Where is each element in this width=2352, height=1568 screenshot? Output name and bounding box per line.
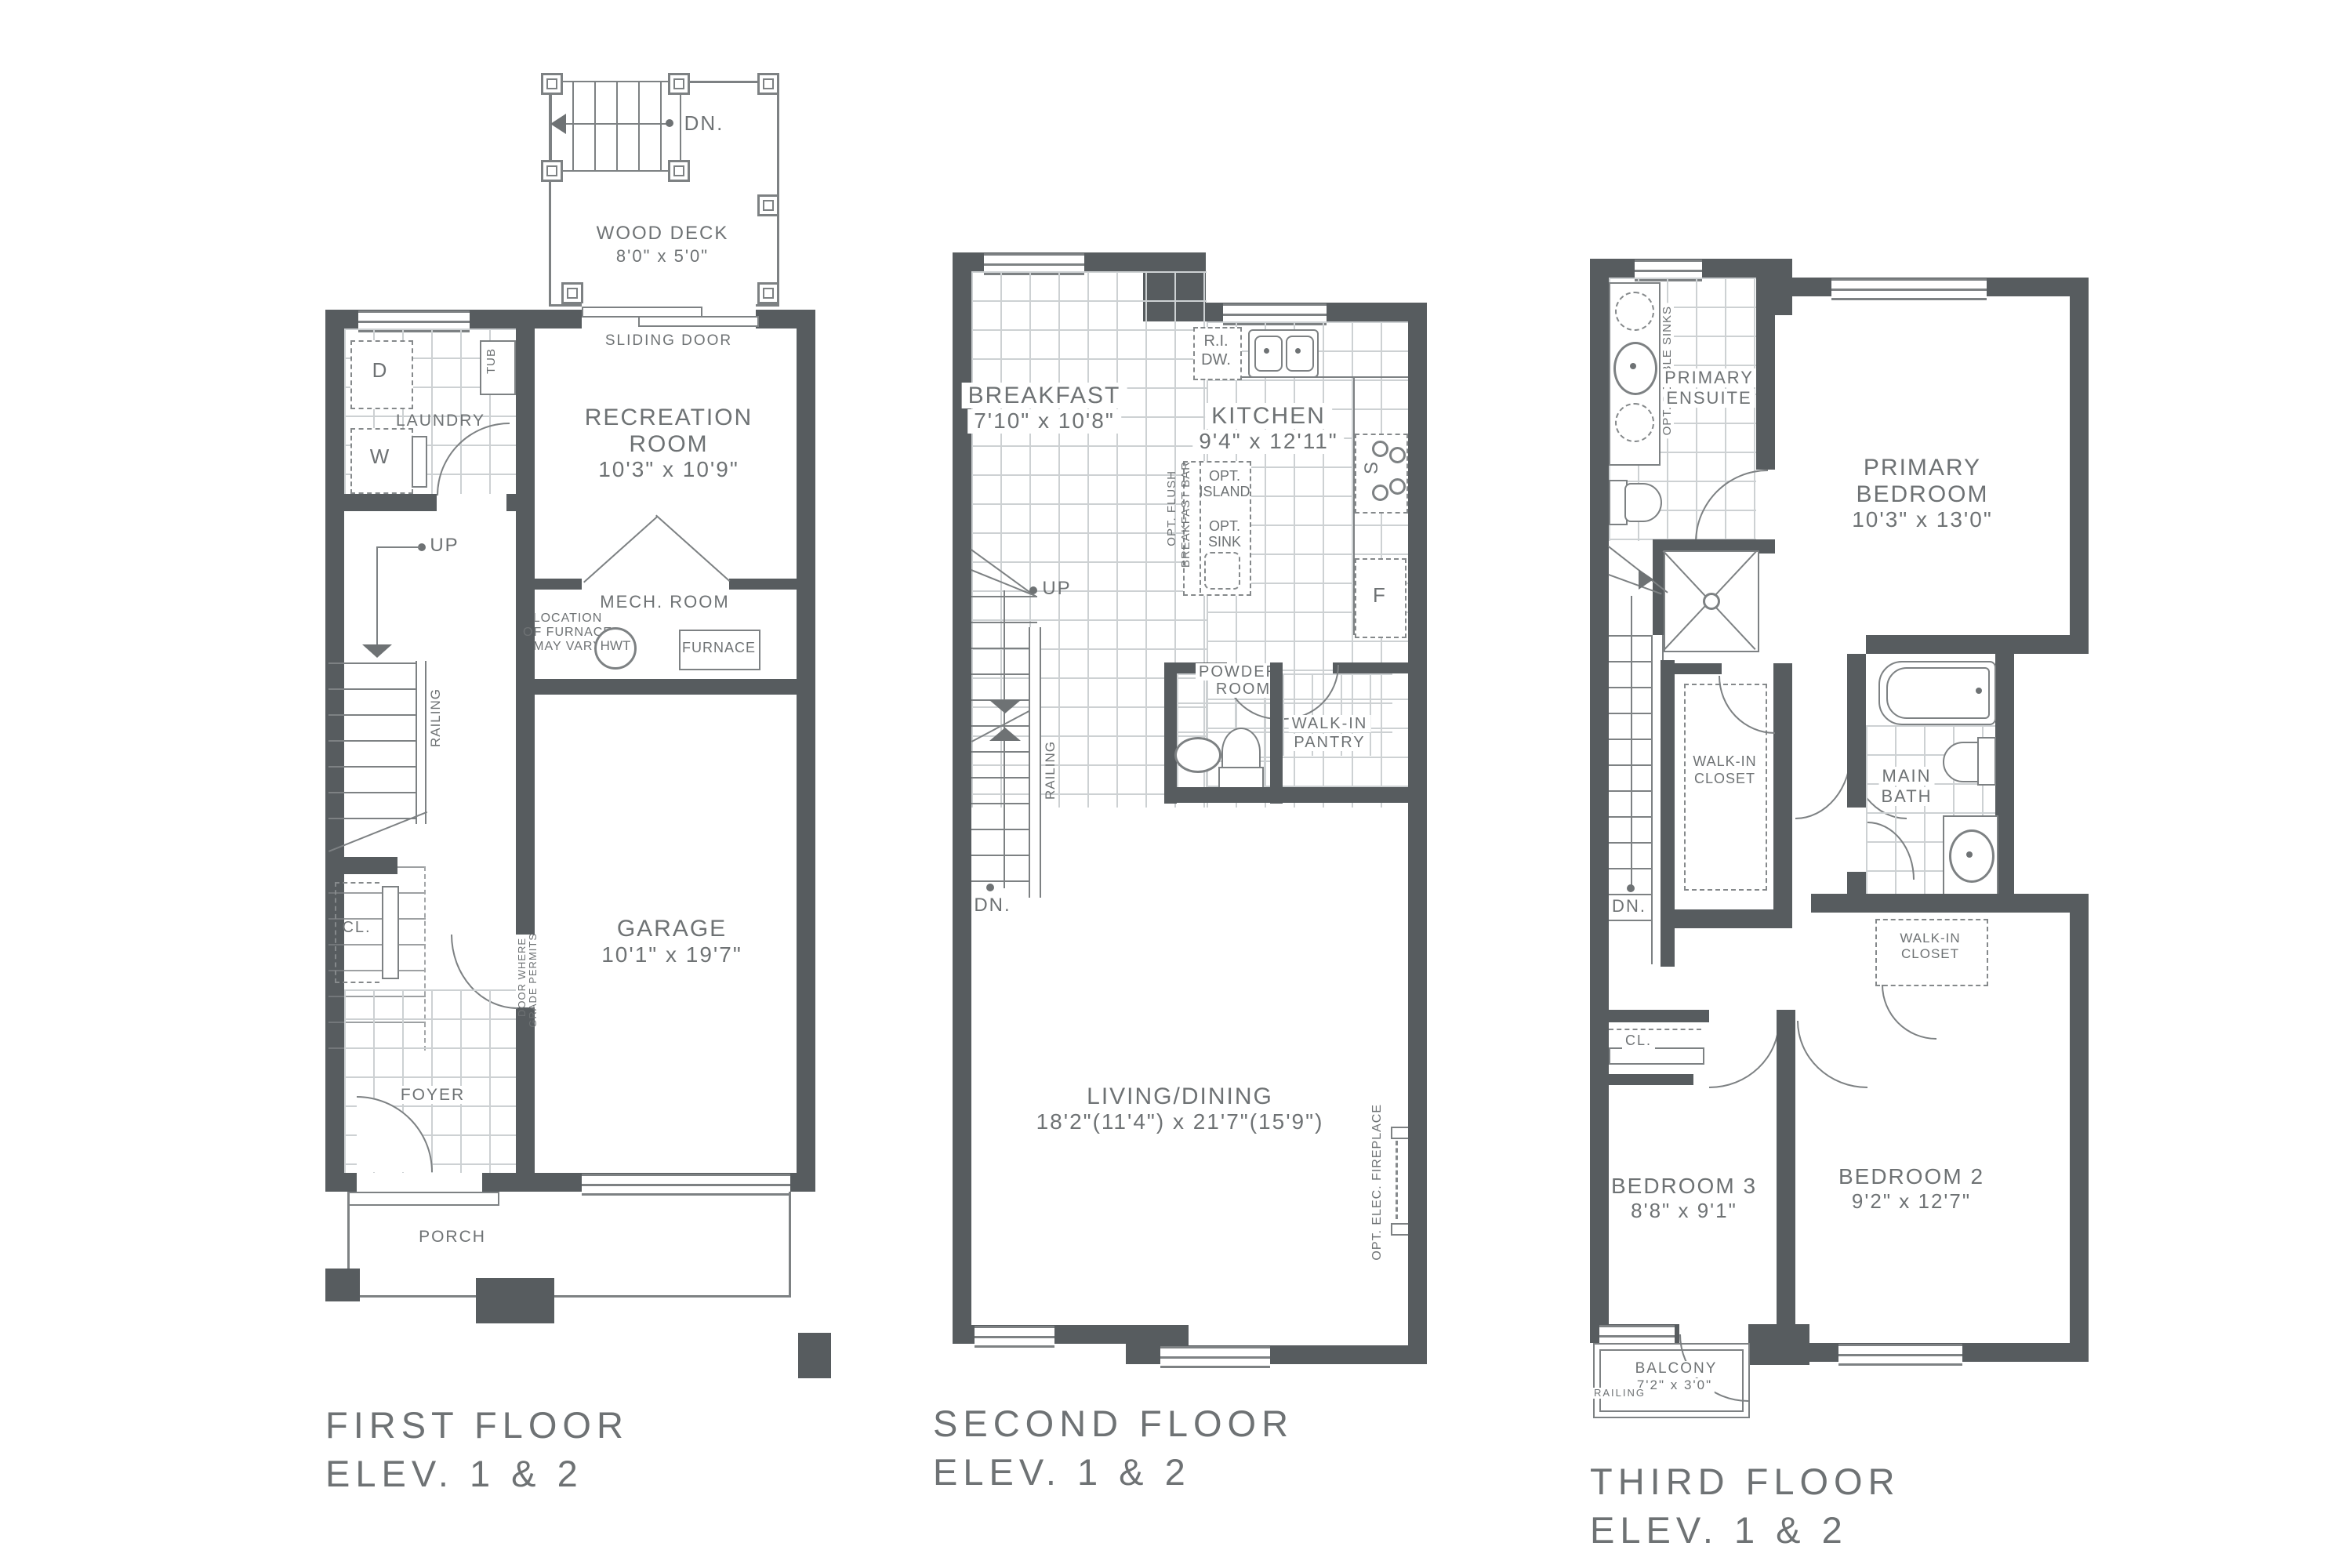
washer-door-panel — [412, 436, 427, 488]
washer-label: W — [370, 445, 391, 468]
bath-toilet-tank — [1977, 737, 1996, 786]
deck-post — [757, 282, 779, 304]
furnace-label: FURNACE — [682, 641, 756, 656]
main-bath-label-2: BATH — [1878, 787, 1935, 806]
bath-tub-inner — [1886, 667, 1990, 719]
deck-stair-arrow — [550, 114, 566, 134]
first-floor-elev: ELEV. 1 & 2 — [325, 1452, 583, 1495]
grade-door-label-2: GRADE PERMITS — [527, 933, 539, 1028]
mech-top-wall-right — [729, 579, 797, 590]
breakfast-bar-label-2: BREAKFAST BAR — [1179, 461, 1192, 568]
powder-label-2: ROOM — [1213, 681, 1274, 698]
breakfast-bar-label-1: OPT. FLUSH — [1165, 470, 1178, 546]
hwt-label: HWT — [601, 639, 631, 654]
furnace-note-1: LOCATION — [533, 612, 603, 626]
deck-dn-label: DN. — [684, 112, 724, 135]
cl-dash-line — [1609, 1029, 1701, 1030]
f2-up-dot — [1029, 586, 1037, 594]
f3-stair-center — [1631, 596, 1632, 887]
wic1-label-2: CLOSET — [1694, 771, 1755, 787]
foyer-label: FOYER — [396, 1086, 470, 1104]
shower-drain — [1703, 593, 1720, 610]
deck-stair-box — [549, 81, 681, 172]
deck-post — [541, 160, 563, 182]
porch-label: PORCH — [419, 1228, 486, 1246]
floorplan-canvas: DN. WOOD DECK 8'0" x 5'0" SLIDING DOOR D… — [0, 0, 2352, 1568]
f1-railing-label: RAILING — [428, 688, 444, 747]
deck-post — [757, 194, 779, 216]
opt-sink-label-1: OPT. — [1209, 519, 1240, 535]
primary-bedroom-label-1: PRIMARY — [1864, 455, 1981, 481]
kitchen-sink-basin-right — [1286, 336, 1314, 372]
bed2-window — [1838, 1344, 1962, 1366]
deck-dn-dot — [666, 119, 673, 127]
f3-right-wall-lower — [2070, 894, 2089, 1362]
porch-slab — [476, 1278, 554, 1323]
laundry-bottom-wall — [344, 494, 437, 511]
f1-stair-line-h — [376, 546, 420, 548]
pantry-label-1: WALK-IN — [1289, 715, 1371, 732]
wic1-top-wall — [1675, 663, 1722, 674]
wic2-door-arc — [1882, 985, 1936, 1040]
bath-sink-drain — [1966, 851, 1973, 858]
grade-door-label-1: DOOR WHERE — [516, 938, 528, 1017]
wic2-label-1: WALK-IN — [1900, 931, 1960, 946]
mech-door-leaf-left — [583, 516, 658, 583]
mech-door-leaf-right — [655, 515, 730, 582]
wic1-label-1: WALK-IN — [1693, 754, 1756, 770]
f1-right-marker — [798, 1333, 831, 1378]
f2-railing-label: RAILING — [1043, 741, 1058, 800]
living-dims: 18'2"(11'4") x 21'7"(15'9") — [1036, 1110, 1324, 1134]
deck-post — [668, 73, 690, 95]
ri-dw-label-1: R.I. — [1203, 332, 1228, 350]
breakfast-label: BREAKFAST — [962, 383, 1127, 408]
deck-post — [561, 282, 583, 304]
wic1-right-wall — [1773, 663, 1792, 922]
island-bar-divider — [1200, 461, 1201, 593]
burner — [1372, 485, 1388, 501]
second-floor-elev: ELEV. 1 & 2 — [933, 1450, 1191, 1494]
f2-stair-railing — [1029, 627, 1041, 898]
first-floor-title: FIRST FLOOR — [325, 1403, 629, 1446]
fridge-label: F — [1373, 584, 1387, 607]
f1-center-wall-lower — [516, 1007, 535, 1173]
rec-room-label-1: RECREATION — [585, 405, 753, 430]
powder-sink — [1174, 737, 1221, 773]
fireplace-dash — [1396, 1141, 1398, 1219]
f3-left-wall — [1590, 259, 1609, 1343]
hall-door-arc-left — [1795, 751, 1852, 819]
f3-dn-label: DN. — [1612, 897, 1646, 916]
bedroom2-dims: 9'2" x 12'7" — [1852, 1190, 1971, 1213]
f2-up-label: UP — [1042, 579, 1071, 599]
fireplace-label: OPT. ELEC. FIREPLACE — [1370, 1104, 1385, 1261]
ensuite-label-1: PRIMARY — [1661, 368, 1757, 387]
ensuite-sink-drain — [1630, 363, 1636, 369]
laundry-bottom-wall-stub — [506, 494, 516, 511]
tub-drain — [1976, 688, 1982, 694]
f1-closet-door — [382, 886, 399, 979]
f3-dn-dot — [1627, 884, 1635, 892]
burner — [1372, 441, 1388, 457]
ri-dw-label-2: DW. — [1201, 351, 1231, 368]
opt-island-label-1: OPT. — [1209, 469, 1240, 485]
opt-sink-circle-1 — [1615, 292, 1654, 331]
main-bath-label-1: MAIN — [1879, 767, 1935, 786]
deck-stair-arrow-line — [554, 123, 670, 125]
f1-closet-top-wall — [328, 857, 397, 874]
cl-label: CL. — [1622, 1033, 1655, 1049]
rec-room-label-2: ROOM — [629, 431, 708, 457]
burner — [1389, 478, 1406, 495]
furnace-note-3: MAY VARY — [533, 640, 602, 654]
opt-sink-label-2: SINK — [1208, 535, 1241, 550]
pantry-label-2: PANTRY — [1290, 734, 1368, 751]
bedroom2-label: BEDROOM 2 — [1838, 1165, 1984, 1189]
wood-deck-dims: 8'0" x 5'0" — [616, 247, 709, 266]
cl-shelf — [1609, 1047, 1704, 1065]
bed2-top-wall — [1811, 894, 2089, 913]
mech-room-label: MECH. ROOM — [600, 593, 729, 612]
living-window-right — [1160, 1346, 1270, 1368]
deck-post — [757, 73, 779, 95]
bedroom3-dims: 8'8" x 9'1" — [1631, 1200, 1737, 1222]
third-floor-elev: ELEV. 1 & 2 — [1590, 1508, 1848, 1552]
dryer-label: D — [372, 359, 389, 382]
f2-dn-dot — [986, 884, 994, 891]
primary-bedroom-dims: 10'3" x 13'0" — [1852, 508, 1993, 532]
f1-stair-arrow — [362, 644, 392, 658]
bed3-door-arc — [1709, 1021, 1780, 1088]
f2-dn-label: DN. — [974, 895, 1011, 916]
garage-label: GARAGE — [617, 916, 727, 942]
f3-stair-right-wall — [1661, 660, 1675, 967]
f1-stairs-upper — [328, 662, 416, 827]
mech-top-wall-left — [535, 579, 582, 590]
f2-break-arrow-down — [989, 700, 1021, 713]
third-floor-title: THIRD FLOOR — [1590, 1460, 1900, 1503]
bed2-door-arc — [1797, 1021, 1867, 1088]
powder-pantry-bottom-wall — [1164, 787, 1427, 803]
ensuite-toilet-bowl — [1624, 483, 1662, 522]
deck-post — [668, 160, 690, 182]
kitchen-sink-basin-left — [1254, 336, 1283, 372]
f3-stair-arrow — [1639, 569, 1653, 590]
living-label: LIVING/DINING — [1087, 1083, 1273, 1109]
primary-window — [1831, 278, 1987, 300]
stove-label: S — [1361, 461, 1383, 474]
cl-bottom-wall — [1590, 1074, 1693, 1085]
shower-top-wall — [1653, 539, 1775, 550]
bath-left-wall — [1847, 654, 1866, 808]
powder-label-1: POWDER — [1196, 663, 1282, 681]
f2-right-wall — [1408, 303, 1427, 1364]
primary-bedroom-label-2: BEDROOM — [1856, 481, 1988, 507]
bedroom3-label: BEDROOM 3 — [1611, 1174, 1757, 1199]
fireplace-bracket-bottom — [1391, 1223, 1408, 1236]
f1-stair-line-v — [376, 546, 378, 648]
f3-right-wall-upper — [2070, 278, 2089, 654]
f1-right-wall — [797, 310, 815, 1192]
balcony-label: BALCONY — [1633, 1361, 1720, 1377]
laundry-label: LAUNDRY — [396, 412, 485, 430]
breakfast-dims: 7'10" x 10'8" — [967, 409, 1121, 434]
fireplace-bracket-top — [1391, 1127, 1408, 1139]
sink-drain-left — [1264, 348, 1269, 354]
ensuite-label-2: ENSUITE — [1663, 389, 1755, 408]
pantry-top-wall — [1333, 662, 1408, 673]
kitchen-dims: 9'4" x 12'11" — [1192, 430, 1344, 454]
pantry-left-wall — [1270, 662, 1283, 804]
second-floor-title: SECOND FLOOR — [933, 1402, 1294, 1445]
f1-stair-railing — [416, 661, 426, 824]
wic2-label-2: CLOSET — [1901, 947, 1959, 962]
laundry-tub-label: TUB — [485, 348, 498, 374]
kitchen-label: KITCHEN — [1205, 403, 1332, 429]
front-door-opening — [357, 1173, 482, 1192]
rec-room-dims: 10'3" x 10'9" — [598, 458, 739, 482]
opt-sink-box — [1204, 552, 1240, 590]
sink-drain-right — [1295, 348, 1301, 354]
primary-bottom-wall — [1866, 635, 2089, 654]
porch-post — [325, 1269, 360, 1301]
mech-bottom-wall — [516, 679, 797, 695]
ensuite-bedroom-divider — [1756, 315, 1775, 470]
wood-deck-label: WOOD DECK — [597, 223, 729, 244]
deck-post — [541, 73, 563, 95]
balcony-railing-label: RAILING — [1592, 1388, 1647, 1399]
f1-up-label: UP — [430, 535, 459, 556]
wic1-bottom-wall — [1675, 909, 1792, 928]
ensuite-sink — [1613, 342, 1657, 395]
sliding-door-label: SLIDING DOOR — [605, 333, 732, 350]
powder-left-wall — [1164, 662, 1177, 804]
opt-island-label-2: ISLAND — [1199, 485, 1250, 500]
opt-sink-circle-2 — [1615, 403, 1654, 442]
bed2-bed3-divider — [1777, 1010, 1795, 1343]
porch-outline — [347, 1192, 791, 1298]
f1-closet-label: CL. — [342, 919, 371, 936]
burner — [1389, 447, 1406, 463]
sliding-rail-2 — [638, 316, 759, 327]
hall-bottom-wall — [1590, 1010, 1709, 1022]
garage-dims: 10'1" x 19'7" — [601, 943, 742, 967]
living-window-left — [975, 1326, 1054, 1348]
